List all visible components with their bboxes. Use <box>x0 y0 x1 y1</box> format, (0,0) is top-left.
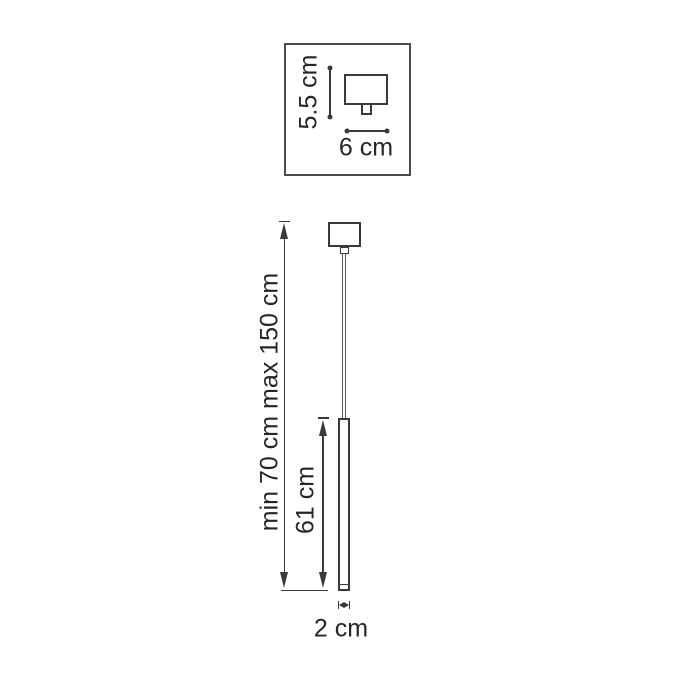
bottom-extension-line <box>281 590 328 592</box>
tube-end-cap-line <box>340 584 348 586</box>
canopy-height-dimension-line <box>329 68 331 117</box>
dimension-dot <box>385 128 390 133</box>
canopy-stem <box>361 103 372 115</box>
suspension-wire <box>342 254 346 418</box>
tube-length-label: 61 cm <box>294 466 319 534</box>
canopy-width-dimension-line <box>347 130 387 132</box>
mount-connector <box>340 247 349 254</box>
dimension-dot <box>345 128 350 133</box>
dimension-diagram: 5.5 cm 6 cm min 70 cm max 150 cm 61 cm 2… <box>0 0 700 700</box>
suspension-top-tick <box>279 221 290 223</box>
arrow-right-icon <box>344 602 349 608</box>
diameter-right-bar <box>349 601 351 609</box>
arrow-down-icon <box>280 572 288 588</box>
ceiling-mount-box <box>328 222 361 247</box>
canopy-height-label: 5.5 cm <box>297 54 322 129</box>
tube-length-dimension-line <box>322 433 324 574</box>
dimension-dot <box>328 115 333 120</box>
arrow-down-icon <box>319 572 327 588</box>
lamp-tube <box>338 418 350 591</box>
suspension-dimension-line <box>284 236 286 574</box>
tube-length-top-tick <box>318 417 329 419</box>
suspension-range-label: min 70 cm max 150 cm <box>258 273 283 531</box>
dimension-dot <box>328 66 333 71</box>
canopy-drawing <box>344 74 388 105</box>
canopy-width-label: 6 cm <box>339 136 393 161</box>
tube-diameter-label: 2 cm <box>314 617 368 642</box>
